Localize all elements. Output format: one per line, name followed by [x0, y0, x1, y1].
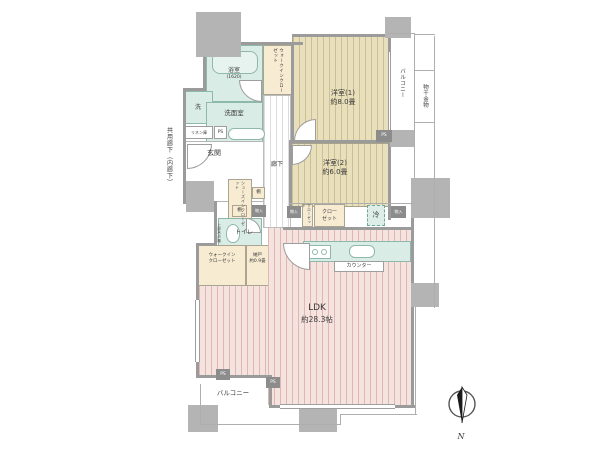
window — [280, 404, 395, 409]
wall — [283, 227, 414, 230]
ps-label: PS — [218, 130, 224, 136]
kitchen-sink — [349, 245, 375, 258]
wall — [292, 34, 391, 37]
ps-label: PS — [270, 380, 276, 386]
toilet-shelf-label: 上部吊戸棚 — [216, 220, 224, 246]
outer-line — [414, 34, 435, 35]
shoes-closet-name: シューズインクローゼット — [234, 181, 246, 227]
shoes-closet-label: シューズインクローゼット — [229, 181, 251, 227]
nando-area: 約0.9畳 — [249, 259, 265, 265]
north-text: N — [458, 432, 465, 442]
pillar — [390, 130, 414, 147]
laundry-label: 洗 — [186, 103, 210, 113]
washroom-name: 洗面室 — [224, 109, 244, 117]
balcony-fence — [389, 33, 415, 34]
pillar — [188, 405, 218, 432]
closet-narrow-text: クローゼット — [303, 204, 313, 227]
floor-plan: リネン庫 PS 棚 棚 物入 物入 物入 冷 PS PS PS カウンター 共用… — [0, 0, 600, 450]
hallway-name: 廊下 — [271, 161, 283, 169]
pipe-space: PS — [214, 126, 227, 139]
wall — [411, 217, 414, 408]
balcony-fence — [200, 424, 341, 425]
wall — [291, 43, 294, 143]
balcony-fence — [415, 307, 416, 414]
ldk-area: 約28.3帖 — [301, 315, 333, 325]
linen-cabinet: リネン庫 — [185, 126, 213, 139]
refrigerator-space: 冷 — [367, 205, 385, 226]
wall — [289, 140, 292, 207]
bathroom-size: (1620) — [227, 75, 242, 81]
storage-box: 物入 — [252, 205, 266, 217]
ps-label: PS — [220, 372, 226, 378]
storage-label: 物入 — [255, 208, 263, 213]
pillar — [411, 178, 450, 218]
fridge-label: 冷 — [373, 211, 380, 220]
shelf-label: 棚 — [256, 190, 261, 196]
laundry-name: 洗 — [195, 104, 201, 112]
counter-label: カウンター — [346, 263, 371, 270]
laundry-hanger-name: 物干金物 — [421, 84, 429, 108]
shared-corridor-label: 共用廊下（内廊下） — [162, 118, 176, 194]
outer-line — [414, 70, 434, 71]
balcony-fence — [340, 414, 341, 424]
pillar — [299, 405, 337, 432]
balcony-fence — [200, 384, 201, 424]
bedroom1-name: 洋室(1) — [331, 89, 355, 98]
storage-label: 物入 — [290, 209, 298, 214]
entrance-name: 玄関 — [207, 149, 221, 158]
storage-label: 物入 — [395, 209, 403, 214]
laundry-hanger-label: 物干金物 — [419, 74, 431, 118]
wic-top-label: ウォークインクローゼット — [265, 48, 290, 93]
stove-burner-2 — [321, 249, 327, 255]
balcony-right-name: バルコニー — [398, 68, 406, 98]
pillar — [196, 12, 241, 57]
counter-tag: カウンター — [334, 261, 384, 272]
bathroom-label: 浴室 (1620) — [210, 64, 258, 84]
entrance-label: 玄関 — [200, 148, 228, 159]
nando-label: 納戸 約0.9畳 — [247, 250, 268, 267]
storage-box: 物入 — [391, 206, 406, 218]
pipe-space: PS — [216, 369, 230, 380]
shelf: 棚 — [252, 187, 265, 199]
closet-line2: ゼット — [322, 216, 337, 223]
balcony-bottom-name: バルコニー — [217, 389, 249, 397]
wic-bottom-line2: クローゼット — [209, 259, 236, 265]
storage-box: 物入 — [287, 206, 301, 218]
outer-line — [414, 147, 415, 178]
bedroom2-label: 洋室(2) 約6.0畳 — [304, 154, 366, 182]
balcony-right-label: バルコニー — [396, 58, 408, 108]
bathroom-name: 浴室 — [228, 67, 240, 75]
ps-label: PS — [381, 133, 387, 139]
balcony-fence — [414, 33, 415, 147]
closet-narrow-label: クローゼット — [302, 204, 313, 227]
pillar — [186, 181, 214, 212]
toilet-name: トイレ — [235, 229, 253, 237]
shared-corridor-text: 共用廊下（内廊下） — [165, 127, 174, 186]
linen-label: リネン庫 — [191, 130, 207, 135]
closet-label: クロー ゼット — [314, 204, 345, 227]
ldk-name: LDK — [308, 303, 326, 315]
outer-line — [434, 36, 435, 308]
window — [388, 52, 391, 130]
wall — [196, 375, 272, 378]
ldk-lower — [199, 286, 268, 375]
pipe-space: PS — [266, 377, 280, 388]
wall — [183, 88, 206, 91]
bedroom2-area: 約6.0畳 — [322, 168, 347, 177]
wic-top-name: ウォークインクローゼット — [272, 48, 284, 93]
compass-north-label: N — [452, 431, 470, 443]
hallway-label: 廊下 — [265, 160, 289, 170]
toilet-shelf-text: 上部吊戸棚 — [218, 223, 223, 243]
pillar — [385, 17, 411, 38]
bedroom2-name: 洋室(2) — [323, 159, 347, 168]
balcony-fence — [340, 414, 417, 415]
ldk-label: LDK 約28.3帖 — [287, 300, 347, 328]
balcony-bottom-label: バルコニー — [204, 388, 262, 399]
stove-burner-1 — [312, 249, 318, 255]
wic-bottom-label: ウォークイン クローゼット — [199, 251, 245, 266]
toilet-label: トイレ — [228, 227, 260, 238]
compass-icon — [438, 383, 486, 429]
pipe-space: PS — [376, 130, 392, 142]
bedroom1-label: 洋室(1) 約8.0畳 — [312, 84, 374, 112]
wall — [196, 243, 217, 246]
window — [195, 300, 200, 362]
vanity-sink — [228, 128, 265, 140]
washroom-label: 洗面室 — [210, 108, 258, 118]
outer-line — [414, 122, 434, 123]
bedroom1-area: 約8.0畳 — [330, 98, 355, 107]
